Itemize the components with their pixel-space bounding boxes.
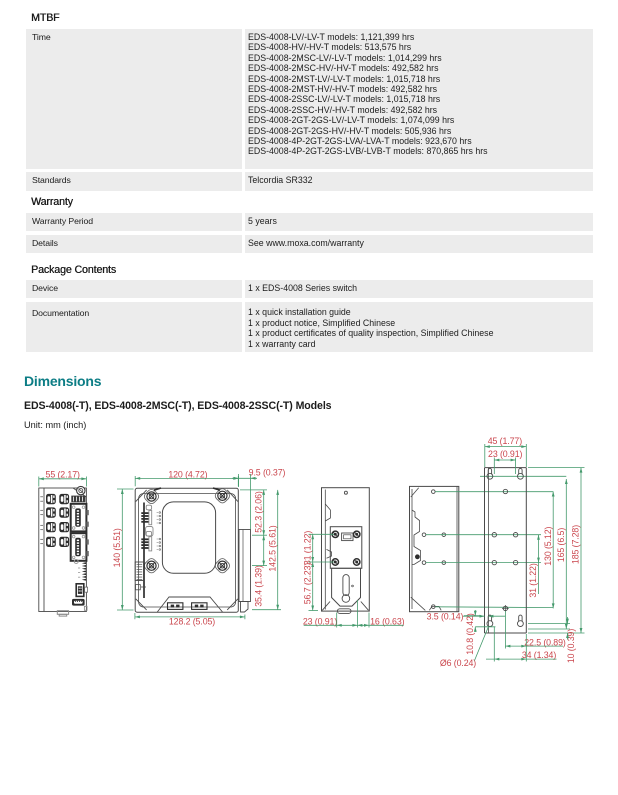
- svg-text:31 (1.22): 31 (1.22): [302, 531, 312, 565]
- svg-text:165 (6.5): 165 (6.5): [556, 528, 566, 562]
- svg-text:10.8 (0.42): 10.8 (0.42): [465, 613, 475, 655]
- svg-text:128.2 (5.05): 128.2 (5.05): [169, 617, 215, 627]
- svg-text:140 (5.51): 140 (5.51): [112, 528, 122, 567]
- svg-text:3.5 (0.14): 3.5 (0.14): [427, 611, 464, 621]
- svg-text:23 (0.91): 23 (0.91): [488, 449, 522, 459]
- svg-text:31 (1.22): 31 (1.22): [528, 563, 538, 597]
- svg-text:56.7 (2.23): 56.7 (2.23): [302, 563, 312, 605]
- svg-text:35.4 (1.39): 35.4 (1.39): [253, 565, 263, 607]
- svg-text:34 (1.34): 34 (1.34): [522, 650, 556, 660]
- svg-text:Ø6 (0.24): Ø6 (0.24): [440, 658, 476, 668]
- svg-text:45 (1.77): 45 (1.77): [488, 436, 522, 446]
- svg-text:52.3 (2.06): 52.3 (2.06): [253, 491, 263, 533]
- svg-text:9.5 (0.37): 9.5 (0.37): [249, 468, 286, 478]
- svg-text:130 (5.12): 130 (5.12): [543, 526, 553, 565]
- svg-text:185 (7.28): 185 (7.28): [571, 525, 581, 564]
- svg-text:55 (2.17): 55 (2.17): [46, 469, 80, 479]
- svg-text:142.5 (5.61): 142.5 (5.61): [267, 525, 277, 571]
